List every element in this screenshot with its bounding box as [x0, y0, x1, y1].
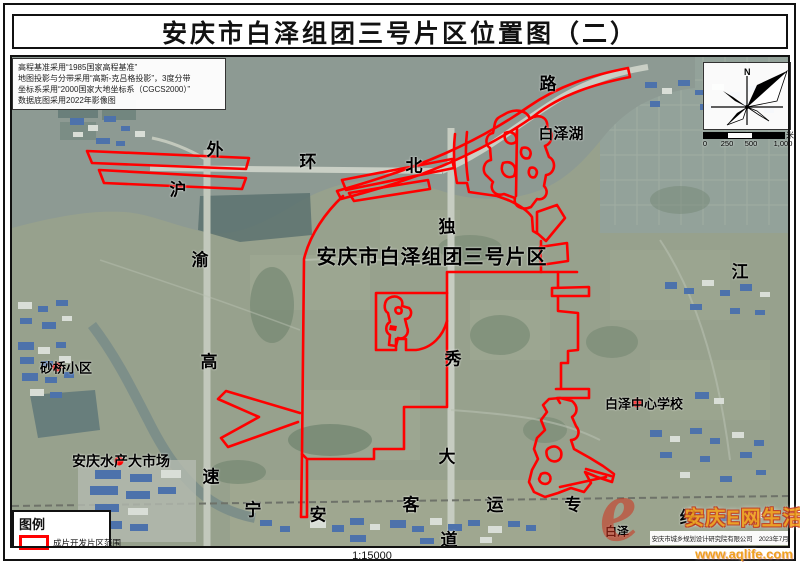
note-line: 坐标系采用“2000国家大地坐标系（CGCS2000）”	[18, 84, 220, 95]
map-sheet: 安庆市白泽组团三号片区位置图（二）	[0, 0, 800, 565]
scale-tick: 500	[745, 139, 758, 148]
watermark-url: www.aqlife.com	[695, 547, 793, 562]
page-title: 安庆市白泽组团三号片区位置图（二）	[162, 14, 638, 50]
compass-box: N	[703, 62, 791, 130]
poi-dot	[633, 399, 642, 408]
note-line: 高程基准采用“1985国家高程基准”	[18, 62, 220, 73]
title-bar: 安庆市白泽组团三号片区位置图（二）	[12, 14, 788, 49]
legend-title: 图例	[19, 514, 104, 533]
satellite-basemap	[10, 55, 790, 548]
credit-text: 安庆市城乡规划设计研究院有限公司 2023年7月	[652, 533, 789, 543]
scale-unit: 米	[786, 130, 794, 141]
coordinate-notes: 高程基准采用“1985国家高程基准”地图投影与分带采用“高斯-克吕格投影”，3度…	[12, 58, 226, 110]
inner-mark	[389, 325, 397, 331]
note-line: 地图投影与分带采用“高斯-克吕格投影”，3度分带	[18, 73, 220, 84]
credit-box: 安庆市城乡规划设计研究院有限公司 2023年7月	[650, 531, 790, 545]
poi-dot	[53, 363, 62, 372]
scale-tick: 250	[721, 139, 734, 148]
note-line: 数据底图采用2022年影像图	[18, 95, 220, 106]
legend-swatch	[19, 535, 49, 550]
north-label: N	[744, 67, 751, 77]
legend-item-label: 成片开发片区范围	[53, 537, 121, 549]
legend: 图例 成片开发片区范围	[12, 510, 111, 548]
scale-ratio: 1:15000	[352, 550, 392, 562]
scale-bar-track	[703, 132, 785, 139]
compass-rose-icon: N	[704, 63, 790, 129]
poi-dot	[115, 457, 124, 466]
scale-tick: 0	[703, 139, 707, 148]
scale-bar: 02505001,000 米	[703, 131, 793, 148]
